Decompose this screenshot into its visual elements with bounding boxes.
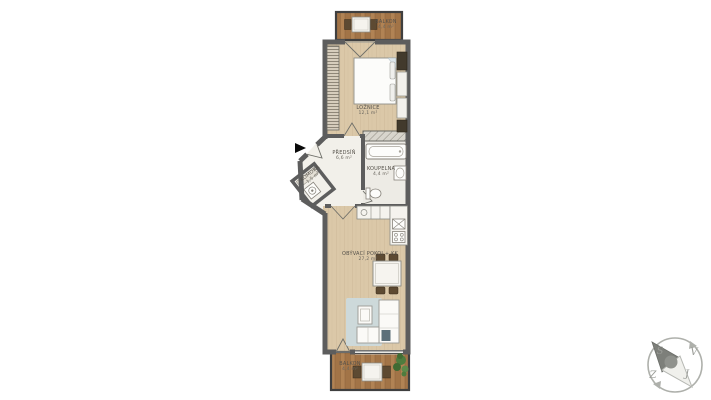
compass: S V J Z bbox=[648, 338, 702, 392]
sofa-throw bbox=[382, 330, 391, 341]
balcony-table bbox=[362, 363, 382, 381]
stove-icon bbox=[393, 232, 406, 243]
room-label-hall: PŘEDSÍŇ 6,6 m² bbox=[328, 150, 360, 162]
pillow bbox=[390, 84, 395, 101]
balcony-chair bbox=[345, 20, 352, 30]
room-label-bathroom: KOUPELNA 4,4 m² bbox=[363, 166, 399, 178]
bedroom-wall-units bbox=[397, 52, 407, 132]
coffee-table bbox=[358, 306, 372, 324]
room-label-living: OBÝVACÍ POKOJ + KK 27,2 m² bbox=[342, 251, 394, 263]
installation-shaft bbox=[363, 131, 408, 141]
compass-label-south: J bbox=[683, 369, 690, 380]
bedroom-wardrobe bbox=[327, 46, 339, 130]
room-label-balcony-top: BALKON 4,4 m² bbox=[372, 19, 400, 31]
balcony-chair bbox=[383, 366, 391, 378]
room-label-bedroom: LOŽNICE 12,1 m² bbox=[346, 105, 390, 117]
room-label-balcony-bottom: BALKON 4,4 m² bbox=[336, 361, 364, 373]
bathtub bbox=[366, 144, 406, 159]
dining-table bbox=[373, 261, 401, 286]
compass-label-north: S bbox=[657, 346, 664, 357]
floorplan-canvas: S V J Z BALKON 4,4 m² LOŽNICE 12,1 m² PŘ… bbox=[0, 0, 711, 400]
sink-icon bbox=[393, 219, 406, 229]
entrance-arrow-icon bbox=[295, 143, 306, 153]
pillow bbox=[390, 62, 395, 79]
living-window bbox=[355, 350, 403, 355]
compass-hub bbox=[665, 356, 678, 369]
floor-plan-drawing: S V J Z bbox=[0, 0, 711, 400]
bed bbox=[354, 58, 396, 104]
compass-label-west: Z bbox=[649, 370, 658, 381]
toilet bbox=[366, 188, 381, 199]
